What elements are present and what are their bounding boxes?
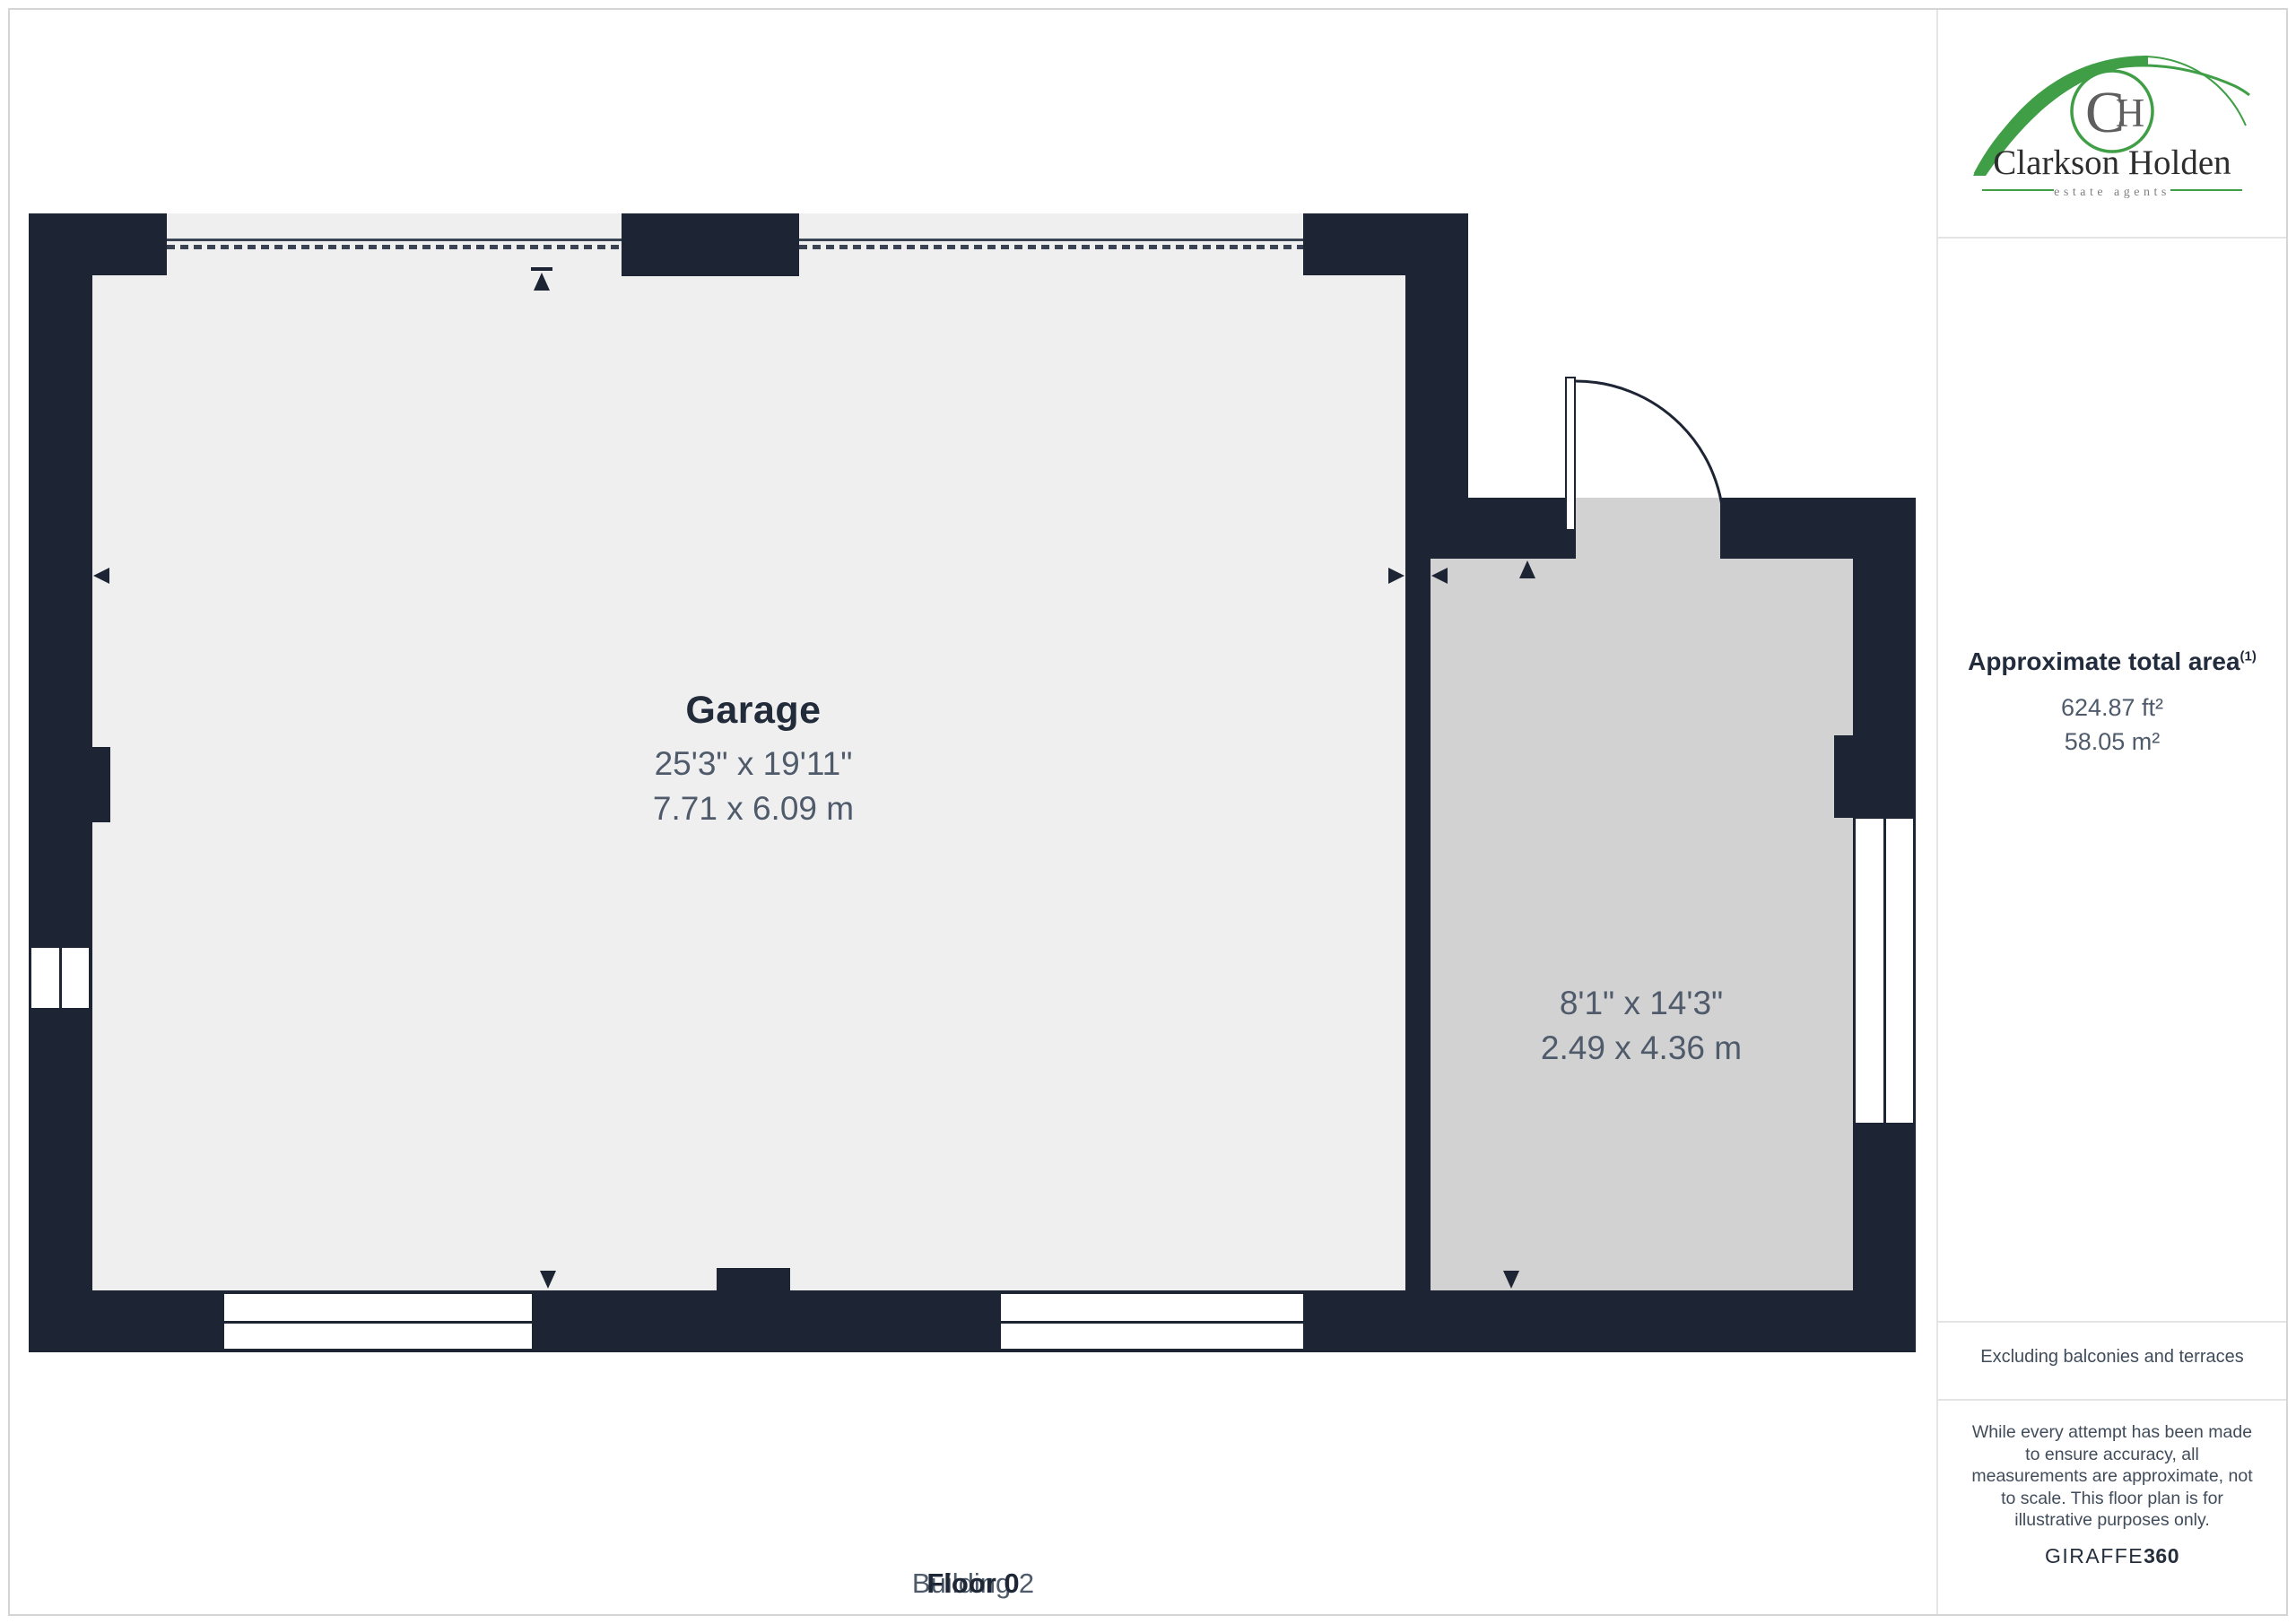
window-pane-divider: [59, 946, 62, 1010]
wall-bottom-pier: [717, 1268, 790, 1290]
approximate-area-block: Approximate total area(1) 624.87 ft² 58.…: [1937, 647, 2287, 759]
garage-door-dashed-line: [167, 245, 622, 249]
floor-indicator: Floor 0 Building 2: [749, 1568, 1197, 1600]
window-bottom-right: [999, 1292, 1305, 1350]
storage-room-floor: [1431, 559, 1853, 1290]
wall-garage-right: [1405, 213, 1468, 559]
door-leaf: [1565, 377, 1576, 531]
area-title-footnote: (1): [2240, 649, 2257, 664]
clarkson-holden-logo: C H Clarkson Holden estate agents: [1964, 38, 2260, 208]
disclaimer-text: While every attempt has been made to ens…: [1968, 1421, 2257, 1532]
garage-door-line: [167, 239, 622, 241]
wall-top-middle-pier: [622, 213, 799, 276]
wall-room-right-step: [1834, 735, 1853, 818]
window-pane-divider: [999, 1321, 1305, 1324]
arrow-down-icon: [540, 1271, 556, 1289]
window-room-right-wall: [1854, 817, 1915, 1125]
garage-door-line: [799, 239, 1303, 241]
window-bottom-left: [222, 1292, 534, 1350]
provider-suffix: 360: [2144, 1544, 2179, 1568]
arrow-left-icon: [1431, 568, 1448, 584]
area-title: Approximate total area(1): [1937, 647, 2287, 676]
window-pane-divider: [222, 1321, 534, 1324]
floorplan-page: Garage 25'3" x 19'11" 7.71 x 6.09 m 8'1"…: [0, 0, 2296, 1624]
giraffe360-logo: GIRAFFE360: [1937, 1544, 2287, 1568]
wall-door-jamb: [1565, 531, 1576, 559]
exclusion-note: Excluding balconies and terraces: [1937, 1347, 2287, 1368]
storage-room-label: 8'1" x 14'3" 2.49 x 4.36 m: [1453, 981, 1830, 1071]
garage-room-label: Garage 25'3" x 19'11" 7.71 x 6.09 m: [395, 689, 1112, 831]
logo-tagline: estate agents: [2054, 186, 2170, 199]
logo-wordmark: Clarkson Holden: [1993, 143, 2231, 182]
room-dimensions-imperial: 25'3" x 19'11": [395, 742, 1112, 786]
window-left-wall: [30, 946, 91, 1010]
arrow-left-icon: [93, 568, 109, 584]
wall-left-pier: [92, 747, 110, 822]
area-title-text: Approximate total area: [1968, 647, 2239, 675]
sidebar-divider: [1936, 10, 1938, 1614]
room-dimensions-imperial: 8'1" x 14'3": [1453, 981, 1830, 1026]
area-imperial: 624.87 ft²: [1937, 690, 2287, 725]
room-name: Garage: [395, 689, 1112, 733]
garage-door-dashed-line: [799, 245, 1303, 249]
floor-label: Floor 0: [926, 1568, 1019, 1600]
area-metric: 58.05 m²: [1937, 725, 2287, 759]
arrow-up-icon: [1519, 560, 1535, 578]
sidebar-section-divider: [1937, 237, 2286, 239]
sidebar-section-divider: [1937, 1321, 2286, 1323]
wall-room-top-left: [1468, 498, 1565, 559]
wall-left: [29, 213, 92, 1352]
room-dimensions-metric: 7.71 x 6.09 m: [395, 786, 1112, 831]
arrow-up-icon: [534, 273, 550, 291]
window-pane-divider: [1883, 817, 1886, 1125]
provider-name: GIRAFFE: [2045, 1544, 2144, 1568]
sidebar-section-divider: [1937, 1399, 2286, 1401]
entrance-marker-bar-icon: [531, 267, 552, 271]
doorway-floor: [1576, 498, 1720, 559]
wall-garage-room-divider: [1405, 559, 1431, 1290]
logo-monogram-h: H: [2116, 91, 2145, 135]
arrow-right-icon: [1388, 568, 1405, 584]
room-dimensions-metric: 2.49 x 4.36 m: [1453, 1026, 1830, 1071]
arrow-down-icon: [1503, 1271, 1519, 1289]
